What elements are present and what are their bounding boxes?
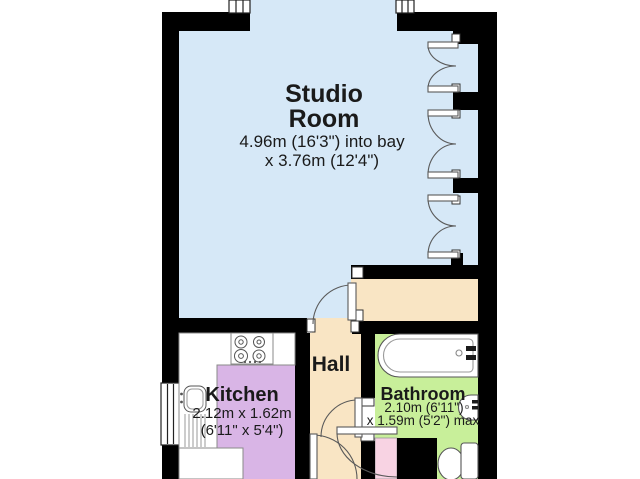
door-jamb: [452, 34, 460, 42]
hall-corridor-floor: [351, 279, 478, 321]
wardrobe-door-leaf: [428, 172, 458, 178]
studio-door-leaf: [348, 283, 356, 320]
studio-bottom-wall: [162, 318, 307, 333]
door-jamb: [307, 319, 315, 332]
studio-door-threshold: [312, 318, 351, 333]
bathtub-tap: [466, 355, 476, 360]
bathroom-dimensions-line2: x 1.59m (5'2") max: [367, 413, 480, 428]
wall-segment: [478, 12, 497, 479]
kitchen-appliance: [179, 448, 243, 479]
floor-plan-canvas: Studio Room 4.96m (16'3") into bay x 3.7…: [0, 0, 640, 479]
bay-window-right: [396, 0, 414, 13]
studio-room-label-line1: Studio: [285, 80, 363, 108]
wardrobe-door-leaf: [428, 252, 458, 258]
wall-pier: [397, 438, 437, 479]
studio-room-dimensions-line1: 4.96m (16'3") into bay: [239, 132, 405, 151]
hall-label: Hall: [312, 353, 351, 376]
door-jamb: [352, 267, 363, 278]
closet-floor: [375, 438, 397, 479]
floor-plan: Studio Room 4.96m (16'3") into bay x 3.7…: [0, 0, 640, 479]
wall-segment: [162, 445, 179, 479]
sink-tap: [180, 393, 183, 396]
corridor-top-wall: [351, 265, 478, 279]
basin-tap: [472, 400, 478, 404]
door-jamb: [361, 398, 374, 406]
wardrobe-wall-stub: [453, 92, 478, 110]
hall-door-leaf: [310, 434, 317, 479]
studio-room-dimensions-line2: x 3.76m (12'4"): [265, 151, 379, 170]
wardrobe-wall-stub: [453, 178, 478, 193]
kitchen-label: Kitchen: [205, 384, 278, 406]
bay-window-left: [229, 0, 250, 13]
bathroom-top-wall: [361, 321, 478, 334]
hall-left-wall: [295, 333, 310, 479]
bathroom-left-wall: [361, 334, 375, 398]
wardrobe-door-leaf: [428, 110, 458, 116]
kitchen-dimensions-line1: 2.12m x 1.62m: [192, 405, 291, 422]
kitchen-dimensions-line2: (6'11" x 5'4"): [201, 422, 284, 439]
wardrobe-door-leaf: [428, 42, 458, 48]
basin-tap: [472, 406, 478, 410]
sink-tap: [180, 401, 183, 404]
studio-room-label-line2: Room: [289, 105, 360, 133]
studio-bay-floor: [250, 0, 397, 31]
bathtub-tap: [466, 346, 476, 351]
wardrobe-door-leaf: [428, 195, 458, 201]
wardrobe-door-leaf: [428, 86, 458, 92]
kitchen-window: [161, 383, 180, 445]
hall-door-leaf: [337, 427, 397, 434]
toilet-bowl: [438, 448, 464, 479]
toilet-cistern: [461, 443, 478, 479]
